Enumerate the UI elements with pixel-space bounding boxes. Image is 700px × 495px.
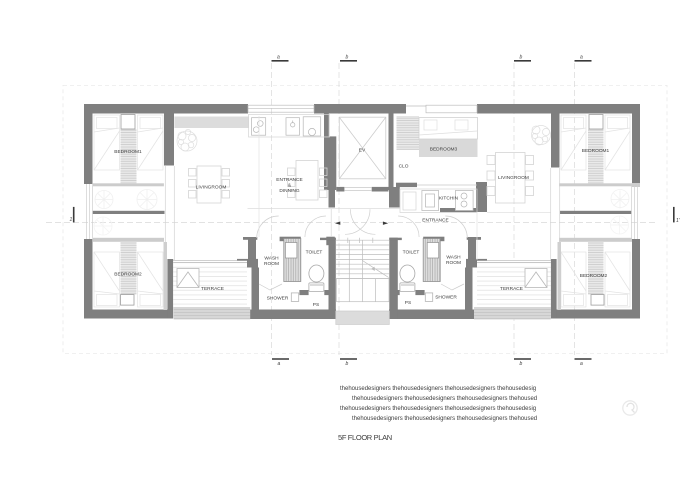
svg-text:ROOM: ROOM <box>264 261 279 267</box>
svg-text:TOILET: TOILET <box>403 249 420 255</box>
svg-text:1: 1 <box>70 217 73 223</box>
svg-text:BEDROOM1: BEDROOM1 <box>114 149 142 155</box>
svg-text:b: b <box>520 55 523 61</box>
svg-text:ENTRANCE: ENTRANCE <box>276 177 302 183</box>
svg-text:BEDROOM2: BEDROOM2 <box>580 273 608 279</box>
svg-text:ROOM: ROOM <box>446 260 461 266</box>
svg-text:a: a <box>580 55 583 61</box>
svg-text:PS: PS <box>313 302 319 308</box>
svg-text:CLO: CLO <box>399 163 409 169</box>
svg-text:SHOWER: SHOWER <box>435 294 457 300</box>
svg-text:thehousedesigners thehousedes: thehousedesigners thehousedesigners theh… <box>352 416 537 422</box>
svg-text:TOILET: TOILET <box>306 249 323 255</box>
svg-text:a: a <box>580 361 583 367</box>
svg-text:b: b <box>346 55 349 61</box>
svg-text:&: & <box>288 183 292 189</box>
svg-text:PS: PS <box>405 300 411 306</box>
svg-text:ENTRANCE: ENTRANCE <box>422 218 448 224</box>
svg-text:thehousedesigners thehousedes: thehousedesigners thehousedesigners theh… <box>340 406 536 412</box>
svg-text:TERRACE: TERRACE <box>500 286 523 292</box>
svg-text:DINNING: DINNING <box>279 188 300 194</box>
svg-text:LIVINGROOM: LIVINGROOM <box>498 175 529 181</box>
svg-text:a: a <box>277 55 280 61</box>
svg-text:1': 1' <box>676 218 681 224</box>
svg-text:KITCHIN: KITCHIN <box>439 195 459 201</box>
svg-text:BEDROOM1: BEDROOM1 <box>582 148 610 154</box>
svg-text:EV: EV <box>359 148 366 154</box>
svg-text:WASH: WASH <box>264 255 279 261</box>
svg-text:LIVINGROOM: LIVINGROOM <box>196 184 227 190</box>
svg-text:WASH: WASH <box>446 254 461 260</box>
svg-text:b: b <box>520 361 523 367</box>
svg-text:5F FLOOR PLAN: 5F FLOOR PLAN <box>338 433 392 442</box>
svg-text:a: a <box>278 361 281 367</box>
svg-text:TERRACE: TERRACE <box>201 286 224 292</box>
svg-text:BEDROOM3: BEDROOM3 <box>430 146 458 152</box>
svg-text:thehousedesigners thehousedes: thehousedesigners thehousedesigners theh… <box>340 386 536 392</box>
svg-text:SHOWER: SHOWER <box>267 296 289 302</box>
svg-text:thehousedesigners thehousedes: thehousedesigners thehousedesigners theh… <box>352 396 537 402</box>
svg-text:b: b <box>346 361 349 367</box>
svg-text:BEDROOM2: BEDROOM2 <box>114 272 142 278</box>
